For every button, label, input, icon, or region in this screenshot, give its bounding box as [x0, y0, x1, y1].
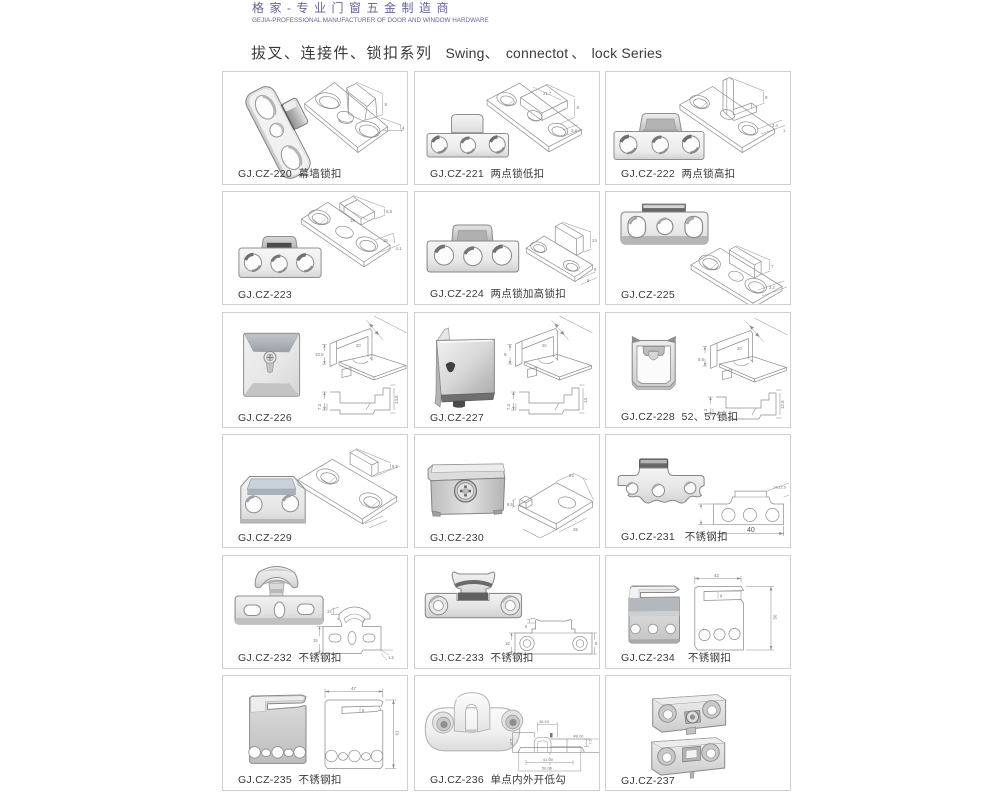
svg-text:22: 22 — [569, 473, 574, 478]
svg-text:35: 35 — [573, 527, 578, 532]
svg-text:4: 4 — [402, 126, 405, 131]
svg-text:20: 20 — [542, 343, 547, 348]
svg-text:8.5: 8.5 — [392, 464, 398, 469]
svg-text:2.4: 2.4 — [571, 128, 577, 133]
svg-text:8: 8 — [594, 267, 597, 272]
svg-text:20: 20 — [356, 343, 361, 348]
svg-text:8: 8 — [720, 594, 723, 599]
svg-text:61: 61 — [395, 730, 400, 735]
svg-text:7.3: 7.3 — [506, 403, 511, 410]
svg-text:8: 8 — [765, 95, 768, 100]
svg-text:13: 13 — [583, 398, 588, 403]
svg-text:14.8: 14.8 — [394, 395, 399, 404]
svg-text:6.5: 6.5 — [386, 209, 393, 214]
svg-text:42: 42 — [714, 573, 719, 578]
svg-text:7.5: 7.5 — [589, 739, 593, 744]
svg-text:21.7: 21.7 — [543, 91, 552, 96]
svg-text:16: 16 — [505, 641, 510, 646]
svg-text:15: 15 — [313, 638, 318, 643]
svg-text:19: 19 — [350, 218, 355, 223]
svg-text:Φ8.00: Φ8.00 — [573, 735, 583, 739]
svg-text:7.3: 7.3 — [317, 403, 322, 410]
svg-text:40: 40 — [747, 527, 755, 534]
svg-text:1: 1 — [783, 128, 786, 133]
svg-text:32: 32 — [327, 609, 332, 614]
svg-text:4.1: 4.1 — [396, 246, 403, 251]
svg-text:8: 8 — [385, 102, 388, 107]
svg-text:20: 20 — [737, 346, 742, 351]
svg-text:47: 47 — [351, 686, 356, 691]
svg-text:7: 7 — [771, 264, 774, 269]
svg-text:16: 16 — [383, 238, 388, 243]
svg-text:3.2: 3.2 — [769, 285, 775, 290]
svg-text:41.00: 41.00 — [543, 757, 554, 762]
svg-text:24: 24 — [592, 238, 597, 243]
svg-text:56: 56 — [773, 614, 778, 619]
svg-text:14(12.5: 14(12.5 — [773, 486, 786, 490]
svg-text:58.00: 58.00 — [542, 766, 553, 771]
svg-text:8: 8 — [577, 105, 580, 110]
svg-text:8.5: 8.5 — [507, 502, 513, 507]
svg-text:3.4: 3.4 — [772, 123, 778, 128]
svg-text:6: 6 — [525, 624, 528, 629]
svg-text:8.5: 8.5 — [698, 357, 705, 362]
svg-text:38.50: 38.50 — [539, 719, 550, 724]
svg-text:12.5: 12.5 — [780, 400, 785, 409]
svg-text:9: 9 — [504, 352, 507, 357]
svg-text:1.5: 1.5 — [388, 655, 394, 660]
svg-text:10.5: 10.5 — [510, 739, 514, 746]
svg-text:10.5: 10.5 — [315, 352, 324, 357]
svg-text:8: 8 — [595, 641, 598, 646]
